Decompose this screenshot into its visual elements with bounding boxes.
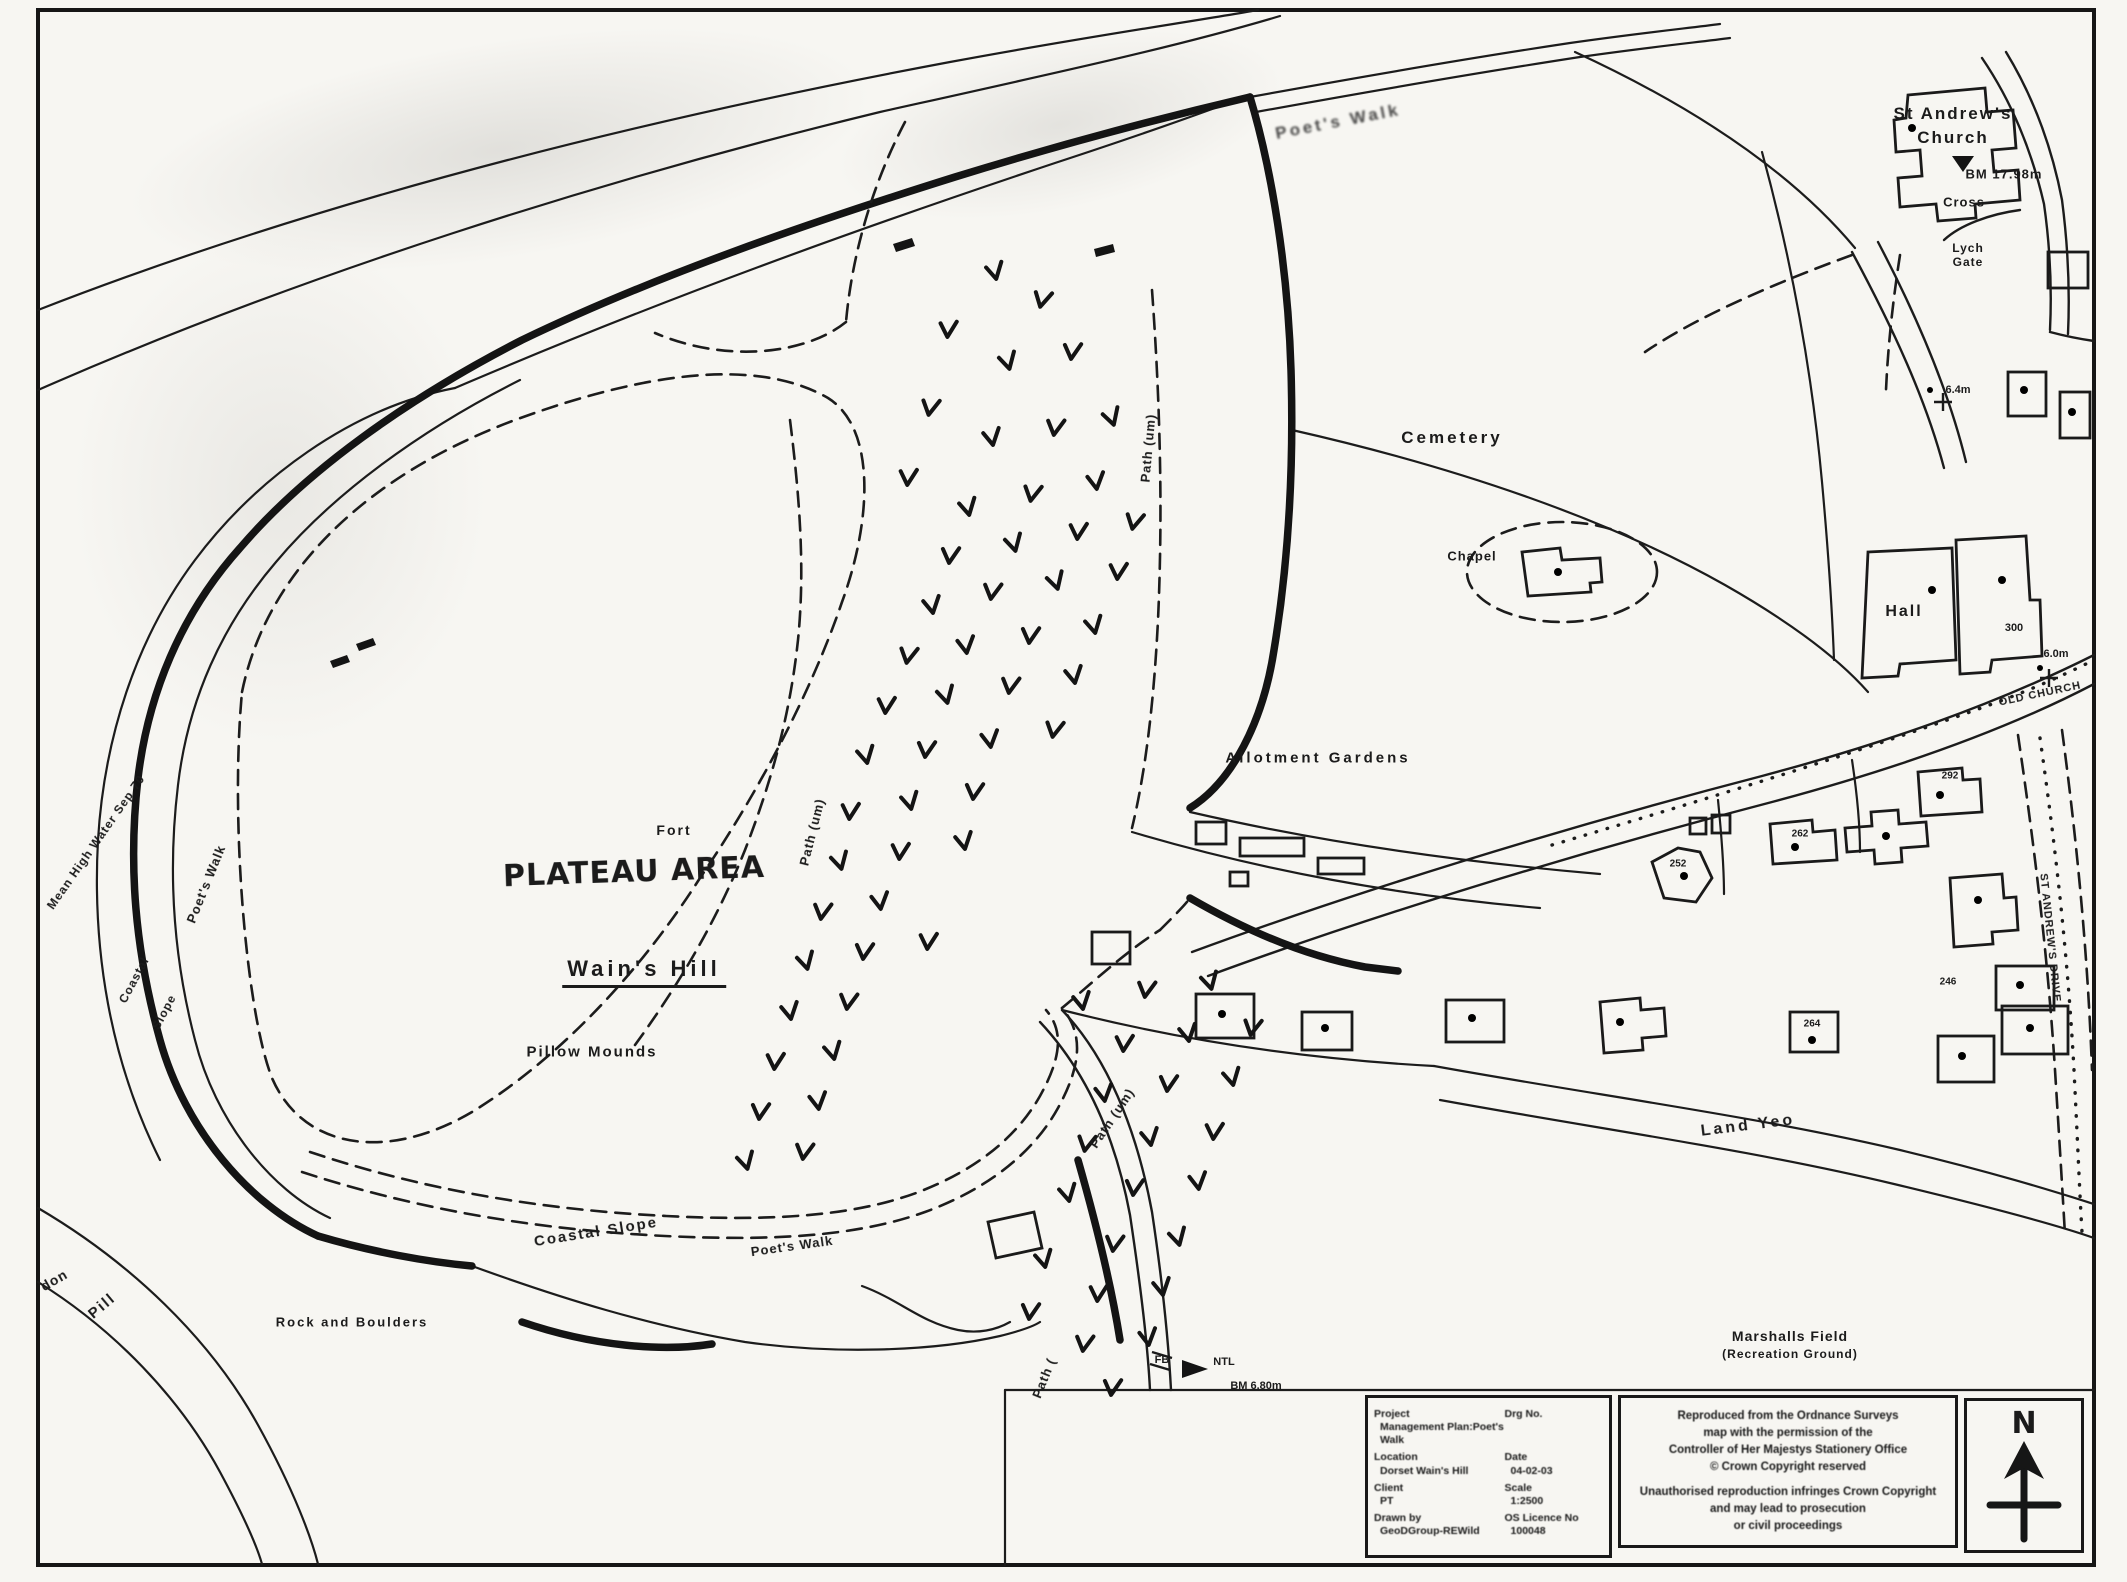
os-licence-value: 100048: [1511, 1525, 1603, 1538]
map-label-6-4m: 6.4m: [1945, 384, 1970, 396]
scrub-mark: [1021, 1302, 1039, 1320]
scrub-mark: [809, 1092, 827, 1110]
scale-label: Scale: [1505, 1482, 1603, 1495]
north-label: N: [2011, 1409, 2036, 1439]
copyright-box: Reproduced from the Ordnance Surveys map…: [1618, 1395, 1958, 1548]
scrub-mark: [1032, 289, 1052, 309]
location-value: Dorset Wain's Hill: [1380, 1465, 1505, 1478]
map-label-6-0m: 6.0m: [2043, 648, 2068, 660]
drawn-by-value: GeoDGroup-REWild: [1380, 1525, 1505, 1538]
location-label: Location: [1374, 1451, 1505, 1464]
map-label-hall: Hall: [1885, 603, 1922, 621]
scale-value: 1:2500: [1511, 1495, 1603, 1508]
project-value: Management Plan:Poet's Walk: [1380, 1421, 1505, 1447]
scrub-mark: [936, 686, 955, 705]
scrub-mark: [1075, 1334, 1094, 1353]
scrub-mark: [939, 320, 956, 337]
scrub-mark: [899, 468, 917, 486]
scrub-mark: [899, 646, 918, 665]
scrub-mark: [1095, 1084, 1113, 1102]
scrub-mark: [1059, 1184, 1078, 1203]
map-label-bm-17-98m: BM 17.98m: [1966, 167, 2043, 182]
scrub-mark: [1035, 1250, 1054, 1269]
scrub-mark: [1085, 616, 1104, 635]
map-label-bm-6-80m: BM 6.80m: [1230, 1380, 1281, 1392]
client-label: Client: [1374, 1482, 1505, 1495]
north-arrow-box: N: [1964, 1398, 2084, 1553]
map-label-st-andrew-s: St Andrew's: [1894, 104, 2013, 124]
scrub-mark: [1137, 980, 1156, 999]
scrub-mark: [1141, 1128, 1159, 1146]
copyright-line: or civil proceedings: [1631, 1518, 1945, 1535]
scrub-mark: [986, 262, 1005, 281]
map-label-allotment-gardens: Allotment Gardens: [1225, 750, 1410, 767]
scrub-mark: [998, 352, 1017, 371]
scrub-mark: [855, 942, 873, 960]
date-label: Date: [1505, 1451, 1603, 1464]
scrub-mark: [877, 696, 895, 714]
map-label-246: 246: [1940, 977, 1957, 988]
os-licence-label: OS Licence No: [1505, 1512, 1603, 1525]
scrub-mark: [1103, 1378, 1121, 1396]
map-label-264: 264: [1804, 1019, 1821, 1030]
date-value: 04-02-03: [1511, 1465, 1603, 1478]
scrub-mark: [921, 398, 940, 417]
scrub-mark: [917, 740, 935, 758]
scrub-mark: [1102, 407, 1122, 427]
map-label-fort: Fort: [656, 822, 691, 838]
scrub-mark: [955, 832, 973, 850]
scrub-mark: [919, 932, 937, 950]
scrub-mark: [1001, 676, 1020, 695]
scrub-mark: [830, 852, 849, 871]
scrub-mark: [871, 892, 889, 910]
drg-no-label: Drg No.: [1505, 1408, 1603, 1421]
map-label-wain-s-hill: Wain's Hill: [562, 956, 726, 988]
map-label-church: Church: [1917, 128, 1989, 148]
map-label-cross: Cross: [1943, 195, 1985, 210]
scrub-mark: [795, 1142, 814, 1161]
title-block: Project Management Plan:Poet's Walk Drg …: [1365, 1395, 1612, 1558]
scrub-mark: [965, 782, 983, 800]
map-label-lych: Lych: [1952, 241, 1984, 255]
scrub-mark: [1004, 534, 1023, 553]
scrub-mark: [1109, 562, 1127, 580]
scrub-mark: [781, 1002, 799, 1020]
client-value: PT: [1380, 1495, 1505, 1508]
scrub-mark: [1023, 484, 1042, 503]
copyright-line: and may lead to prosecution: [1631, 1501, 1945, 1518]
map-label-pillow-mounds: Pillow Mounds: [527, 1044, 658, 1061]
scrub-mark: [1139, 1328, 1157, 1346]
scrub-mark: [839, 992, 858, 1011]
scrub-mark: [1105, 1234, 1124, 1253]
scrub-mark: [901, 792, 920, 811]
scrub-mark: [796, 952, 815, 971]
scrub-mark: [1189, 1172, 1207, 1190]
map-label-252: 252: [1670, 859, 1687, 870]
scrub-mark: [1021, 626, 1039, 644]
drawn-by-label: Drawn by: [1374, 1512, 1505, 1525]
copyright-line: Controller of Her Majestys Stationery Of…: [1631, 1442, 1945, 1459]
scrub-mark: [841, 802, 859, 820]
scrub-mark: [824, 1042, 843, 1061]
scrub-mark: [1046, 571, 1065, 590]
map-label-gate: Gate: [1953, 255, 1984, 269]
scrub-mark: [736, 1152, 755, 1171]
map-label-chapel: Chapel: [1447, 549, 1496, 564]
scrub-mark: [1205, 1122, 1223, 1140]
map-label-ntl: NTL: [1213, 1356, 1234, 1368]
scrub-mark: [1243, 1018, 1262, 1037]
project-label: Project: [1374, 1408, 1505, 1421]
map-label-262: 262: [1792, 829, 1809, 840]
scrub-mark: [751, 1102, 769, 1120]
scrub-mark: [1115, 1034, 1133, 1052]
map-label-300: 300: [2005, 622, 2023, 634]
scrub-mark: [857, 746, 876, 765]
scrub-mark: [1069, 522, 1087, 540]
copyright-line: map with the permission of the: [1631, 1425, 1945, 1442]
scrub-mark: [1125, 511, 1144, 530]
map-label-marshalls-field: Marshalls Field: [1732, 1328, 1848, 1344]
scrub-mark: [959, 498, 978, 517]
scrub-mark: [1168, 1228, 1187, 1247]
scrub-mark: [813, 902, 832, 921]
map-linework: [0, 0, 2127, 1582]
scrub-mark: [1065, 666, 1083, 684]
map-label-cemetery: Cemetery: [1401, 428, 1503, 448]
map-label-fb: FB: [1155, 1354, 1170, 1366]
scrub-mark: [1063, 342, 1081, 360]
scrub-mark: [1045, 720, 1064, 739]
map-label-rock-and-boulders: Rock and Boulders: [276, 1315, 428, 1330]
scrub-mark: [1046, 418, 1065, 437]
map-sheet: Poet's WalkSt Andrew'sChurchBM 17.98mCro…: [0, 0, 2127, 1582]
scrub-mark: [766, 1052, 784, 1070]
scrub-mark: [1089, 1284, 1107, 1302]
scrub-mark: [1159, 1074, 1177, 1092]
scrub-mark: [941, 546, 959, 564]
scrub-mark: [1125, 1178, 1143, 1196]
scrub-mark: [957, 636, 975, 654]
scrub-mark: [1073, 992, 1091, 1010]
copyright-line: Unauthorised reproduction infringes Crow…: [1631, 1484, 1945, 1501]
scrub-mark: [923, 596, 941, 614]
copyright-line: © Crown Copyright reserved: [1631, 1459, 1945, 1476]
copyright-line: Reproduced from the Ordnance Surveys: [1631, 1408, 1945, 1425]
map-label-recreation-ground: (Recreation Ground): [1722, 1347, 1858, 1361]
scrub-mark: [983, 428, 1001, 446]
scrub-mark: [983, 582, 1002, 601]
scrub-mark: [1223, 1068, 1242, 1087]
north-arrow-icon: [1964, 1439, 2084, 1549]
scrub-mark: [981, 730, 999, 748]
scrub-mark: [1087, 472, 1105, 490]
map-label-292: 292: [1942, 771, 1959, 782]
scrub-mark: [891, 842, 909, 860]
